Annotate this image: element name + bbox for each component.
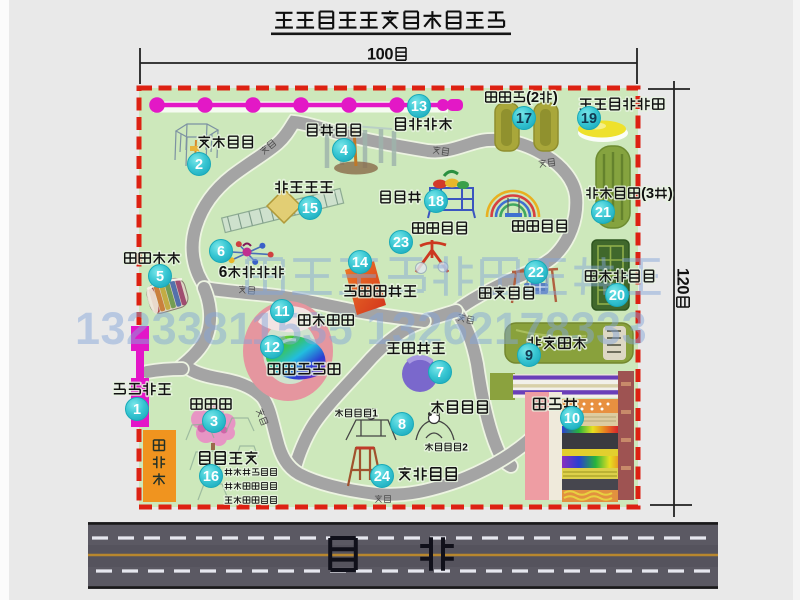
svg-text:21: 21 (595, 205, 611, 221)
svg-text:18: 18 (428, 194, 444, 210)
svg-text:9: 9 (525, 348, 533, 364)
svg-text:2: 2 (462, 442, 468, 453)
svg-text:11: 11 (274, 304, 289, 320)
svg-text:12: 12 (264, 340, 280, 356)
svg-text:6: 6 (217, 244, 225, 260)
svg-text:1: 1 (133, 402, 141, 418)
svg-text:19: 19 (581, 111, 597, 127)
svg-text:0: 0 (673, 285, 691, 294)
svg-text:10: 10 (564, 411, 580, 427)
svg-text:1: 1 (372, 408, 378, 419)
svg-text:6: 6 (219, 264, 228, 281)
svg-text:13233811535 13262178333: 13233811535 13262178333 (75, 303, 647, 354)
svg-text:8: 8 (398, 417, 406, 433)
svg-text:20: 20 (609, 288, 625, 304)
svg-text:4: 4 (340, 143, 348, 159)
svg-text:7: 7 (436, 365, 444, 381)
svg-text:16: 16 (203, 469, 219, 485)
svg-text:0: 0 (384, 46, 393, 64)
svg-text:2: 2 (531, 90, 539, 106)
svg-text:17: 17 (516, 111, 532, 127)
svg-text:5: 5 (156, 269, 164, 285)
svg-text:14: 14 (352, 255, 368, 271)
svg-text:): ) (668, 186, 673, 202)
svg-text:13: 13 (411, 99, 427, 115)
svg-text:2: 2 (195, 157, 203, 173)
svg-text:15: 15 (302, 201, 318, 217)
svg-text:3: 3 (210, 414, 218, 430)
svg-text:24: 24 (374, 469, 390, 485)
svg-text:3: 3 (646, 186, 654, 202)
svg-text:22: 22 (528, 265, 544, 281)
svg-text:23: 23 (393, 235, 409, 251)
svg-text:): ) (553, 90, 558, 106)
